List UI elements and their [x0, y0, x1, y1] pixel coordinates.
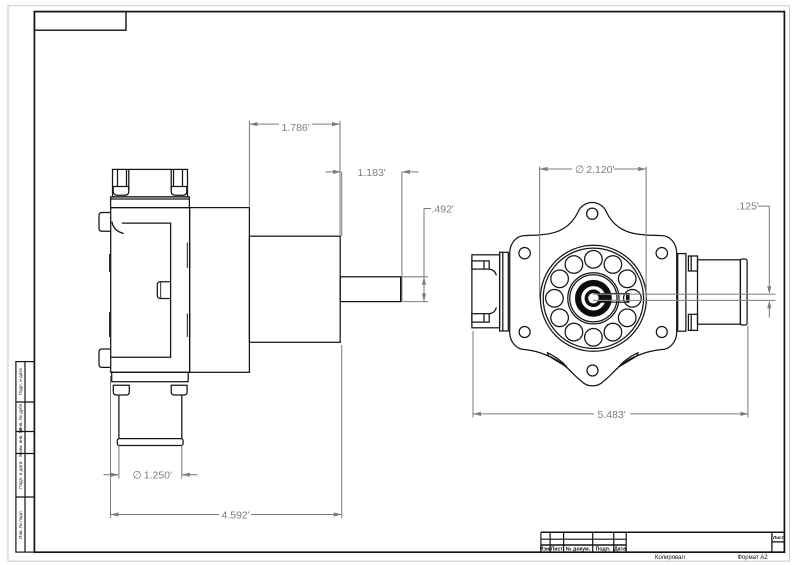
svg-text:№ докум.: № докум. — [566, 547, 591, 553]
svg-text:Инв. № дубл.: Инв. № дубл. — [18, 402, 23, 430]
svg-text:1.786': 1.786' — [282, 122, 310, 134]
svg-text:Взам. инв. №: Взам. инв. № — [18, 428, 23, 457]
svg-text:Копировал: Копировал — [655, 555, 686, 561]
svg-text:Дата: Дата — [614, 547, 626, 553]
svg-text:Формат А2: Формат А2 — [737, 555, 768, 561]
svg-text:.492': .492' — [432, 204, 454, 216]
svg-text:Инв. № подл.: Инв. № подл. — [18, 510, 23, 539]
svg-text:Лист: Лист — [773, 535, 785, 540]
svg-text:Лист: Лист — [551, 547, 564, 553]
svg-text:.125': .125' — [737, 201, 759, 213]
svg-text:∅ 2.120': ∅ 2.120' — [575, 164, 615, 176]
svg-text:Подп.: Подп. — [596, 547, 611, 553]
svg-text:Подп. и дата: Подп. и дата — [18, 461, 23, 489]
svg-text:4.592': 4.592' — [222, 510, 250, 522]
svg-text:∅ 1.250': ∅ 1.250' — [133, 470, 173, 482]
svg-text:5.483': 5.483' — [598, 409, 626, 421]
svg-text:1.183': 1.183' — [358, 167, 386, 179]
svg-text:Подп. и дата: Подп. и дата — [18, 368, 23, 396]
